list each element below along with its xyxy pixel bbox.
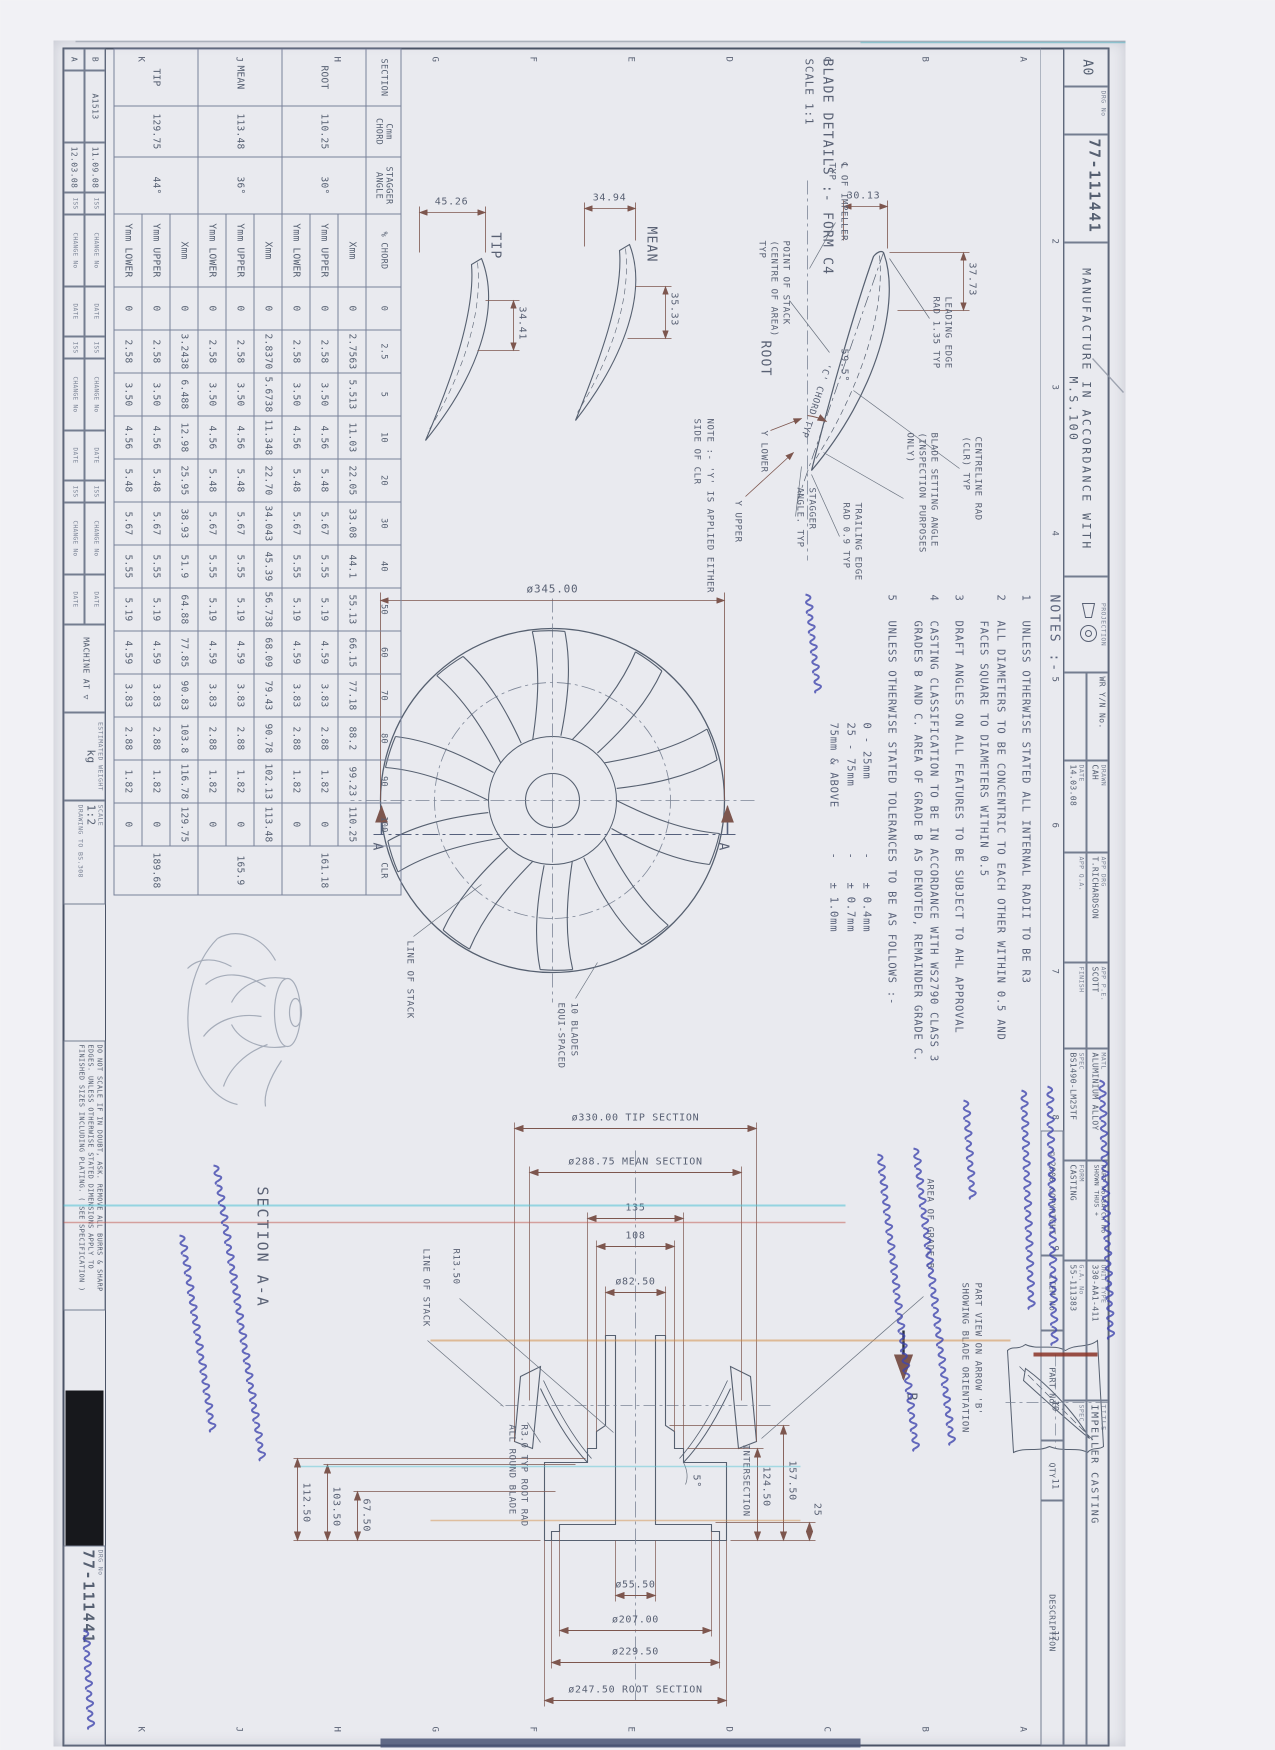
revision-header: CHANGE No — [84, 358, 105, 430]
stack-leader — [413, 884, 481, 936]
est-weight-cell: ESTIMATED WEIGHT kg — [63, 712, 105, 800]
revision-value: 11.09.08 — [84, 142, 105, 192]
tip-width-dim: 34.41 — [516, 306, 527, 340]
table-cell: Ymm UPPER — [310, 214, 338, 287]
table-cell: 1.82 — [198, 760, 226, 803]
table-cell: CLR — [366, 846, 401, 895]
table-cell: 0 — [338, 287, 366, 330]
note-item: 2 ALL DIAMETERS TO BE CONCENTRIC TO EACH… — [975, 594, 1008, 1080]
table-cell: 110.25 — [338, 803, 366, 846]
table-cell: 2.7563 — [338, 330, 366, 373]
table-cell: 0 — [310, 803, 338, 846]
revision-header: DATE — [63, 430, 84, 480]
revision-value: B — [84, 48, 105, 70]
note-item: 5 UNLESS OTHERWISE STATED TOLERANCES TO … — [883, 594, 899, 1080]
table-cell: % CHORD — [366, 214, 401, 287]
section-dim-texts: ø330.00 TIP SECTION ø288.75 MEAN SECTION… — [300, 1112, 934, 1695]
table-cell: 66.15 — [338, 631, 366, 674]
table-cell: 5.48 — [310, 459, 338, 502]
border-letter: J — [233, 56, 243, 61]
revision-value: A — [63, 48, 84, 70]
revision-value: A1513 — [84, 70, 105, 142]
svg-text:(CLR) TYP: (CLR) TYP — [960, 436, 970, 490]
table-cell: 60 — [366, 631, 401, 674]
table-cell: 3.50 — [282, 373, 310, 416]
table-cell: 3.50 — [226, 373, 254, 416]
mean-profile-sketch — [575, 244, 635, 420]
table-cell: Cmm CHORD — [366, 106, 401, 157]
table-cell: 5.67 — [114, 502, 142, 545]
table-cell: 5.6738 — [254, 373, 282, 416]
svg-text:ø247.50 ROOT SECTION: ø247.50 ROOT SECTION — [568, 1684, 702, 1695]
revision-header: DATE — [63, 286, 84, 336]
table-cell: 2.88 — [226, 717, 254, 760]
drawing-sheet-rotated: BLADE DETAILS :- FORM C4 SCALE 1:1 37.73… — [0, 0, 1275, 1750]
table-cell: 5.19 — [114, 588, 142, 631]
projection-symbol — [1077, 597, 1099, 651]
drg-no-bottom: DRG No 77-111441 — [63, 1545, 105, 1745]
blade-table: SECTIONCmm CHORDSTAGGER ANGLE% CHORD02.5… — [113, 48, 401, 895]
notes-heading: NOTES :- — [1043, 594, 1063, 1080]
border-number: 10 — [1049, 1400, 1059, 1411]
revision-header: CHANGE No — [63, 214, 84, 286]
tolerance-row: 0 - 25mm - ± 0.4mm — [858, 722, 874, 1080]
table-cell: 36° — [198, 157, 282, 214]
table-cell: 22.70 — [254, 459, 282, 502]
tolerance-row: 75mm & ABOVE - ± 1.0mm — [825, 722, 841, 1080]
revision-header: ISS — [84, 480, 105, 502]
table-cell: 165.9 — [198, 846, 282, 895]
table-cell: Xmm — [170, 214, 198, 287]
table-cell: 0 — [282, 287, 310, 330]
table-cell: 5.67 — [282, 502, 310, 545]
table-cell: 5.19 — [226, 588, 254, 631]
table-cell: 2.88 — [282, 717, 310, 760]
svg-text:67.50: 67.50 — [360, 1498, 371, 1532]
svg-text:157.50: 157.50 — [786, 1460, 797, 1500]
svg-text:(INSPECTION PURPOSES: (INSPECTION PURPOSES — [916, 432, 926, 552]
revision-header: DATE — [84, 574, 105, 624]
svg-text:RAD 0.9 TYP: RAD 0.9 TYP — [840, 502, 850, 568]
table-cell: TIP — [114, 49, 198, 106]
table-cell: 44.1 — [338, 545, 366, 588]
svg-text:TRAILING EDGE: TRAILING EDGE — [852, 502, 862, 580]
table-cell: 100 — [366, 803, 401, 846]
svg-text:108: 108 — [625, 1230, 645, 1241]
table-cell: 1.82 — [114, 760, 142, 803]
date-cell: DATE14.03.08 — [1063, 760, 1086, 852]
qty-header: QTY — [1040, 1440, 1063, 1500]
notes-block: NOTES :- 1 UNLESS OTHERWISE STATED ALL I… — [825, 594, 1063, 1080]
tolerance-row: 25 - 75mm - ± 0.7mm — [841, 722, 857, 1080]
svg-text:R3.0 TYP ROOT RAD: R3.0 TYP ROOT RAD — [518, 1424, 528, 1526]
svg-text:A: A — [715, 842, 730, 851]
border-number: 3 — [1049, 384, 1059, 389]
form-cell: FORMCASTING — [1063, 1160, 1086, 1260]
table-cell: 4.56 — [226, 416, 254, 459]
table-cell: Xmm — [338, 214, 366, 287]
svg-text:TYP: TYP — [826, 162, 836, 180]
table-cell: 4.59 — [226, 631, 254, 674]
table-cell: Xmm — [254, 214, 282, 287]
border-number: 8 — [1049, 1114, 1059, 1119]
table-cell: 2.58 — [282, 330, 310, 373]
table-cell: 3.83 — [114, 674, 142, 717]
table-cell: 4.59 — [310, 631, 338, 674]
border-letter: F — [527, 56, 537, 61]
table-cell: 1.82 — [226, 760, 254, 803]
svg-text:'C' CHORD TYP: 'C' CHORD TYP — [798, 361, 832, 439]
table-cell: 70 — [366, 674, 401, 717]
item-no-header: ITEM No — [1040, 1255, 1063, 1330]
svg-text:Y UPPER: Y UPPER — [732, 500, 742, 542]
table-cell: 30 — [366, 502, 401, 545]
revision-value — [63, 70, 84, 142]
table-cell: 30° — [282, 157, 366, 214]
svg-text:RAD 1.35 TYP: RAD 1.35 TYP — [930, 296, 940, 368]
table-cell: 11.03 — [338, 416, 366, 459]
table-cell: 5.48 — [114, 459, 142, 502]
table-cell: 4.56 — [198, 416, 226, 459]
drg-no-label: DRG No — [1063, 86, 1108, 134]
table-cell: 22.05 — [338, 459, 366, 502]
border-letter: A — [1017, 1726, 1027, 1731]
manufacture-note: MANUFACTURE IN ACCORDANCE WITH M.S.100 — [1063, 242, 1108, 576]
table-cell: 0 — [254, 287, 282, 330]
note-item: 3 DRAFT ANGLES ON ALL FEATURES TO BE SUB… — [950, 594, 966, 1080]
table-cell: 3.50 — [142, 373, 170, 416]
svg-text:25: 25 — [811, 1503, 822, 1516]
table-cell: 6.488 — [170, 373, 198, 416]
title-cell: TITLEIMPELLER CASTING — [1086, 1400, 1108, 1745]
spec-cell: SPECBS1490-LM25TF — [1063, 1048, 1086, 1160]
table-cell: 3.83 — [310, 674, 338, 717]
table-cell: 33.08 — [338, 502, 366, 545]
border-letter: D — [723, 1726, 733, 1731]
table-cell: 4.56 — [114, 416, 142, 459]
section-cut-line: A A — [369, 806, 735, 851]
svg-text:SIDE OF CLR: SIDE OF CLR — [691, 418, 701, 484]
table-cell: 2.88 — [198, 717, 226, 760]
copyright-cell: © 2008 COPYRIGHT — [1040, 1130, 1063, 1255]
impeller-3d-sketch — [187, 933, 301, 1106]
scale-cell: SCALE 1:2 DRAWING TO BS.308 — [63, 800, 105, 904]
part-no-header: PART No — [1040, 1330, 1063, 1440]
revision-header: ISS — [84, 192, 105, 214]
border-letter: A — [1017, 56, 1027, 61]
table-cell: 0 — [366, 287, 401, 330]
tip-height-dim: 45.26 — [434, 196, 468, 207]
svg-text:5°: 5° — [690, 1474, 701, 1487]
wr-cell: WR Y/N No. — [1086, 672, 1108, 760]
root-width-dim: 37.73 — [966, 262, 977, 296]
svg-text:ø229.50: ø229.50 — [611, 1646, 658, 1657]
part-batch-cell: PART No/BATCH No SHOWN THUS + — [1086, 1160, 1108, 1260]
border-letter: E — [625, 56, 635, 61]
revision-header: ISS — [84, 336, 105, 358]
app-pe-cell: APP P.E.SCOTT — [1086, 962, 1108, 1048]
part-view-label-1: PART VIEW ON ARROW 'B' — [972, 1282, 982, 1414]
table-cell: 5 — [366, 373, 401, 416]
table-cell: 25.95 — [170, 459, 198, 502]
table-cell: 0 — [114, 287, 142, 330]
wr-cell-blank — [1063, 672, 1086, 760]
table-cell: 3.50 — [114, 373, 142, 416]
table-cell: 129.75 — [114, 106, 198, 157]
table-cell: 0 — [198, 287, 226, 330]
svg-text:℄ OF IMPELLER: ℄ OF IMPELLER — [838, 161, 848, 241]
revision-header: CHANGE No — [63, 358, 84, 430]
table-cell: 0 — [198, 803, 226, 846]
finish-cell: FINISH — [1063, 962, 1086, 1048]
table-cell: 80 — [366, 717, 401, 760]
table-cell: 88.2 — [338, 717, 366, 760]
revision-header: ISS — [63, 480, 84, 502]
table-cell: 90 — [366, 760, 401, 803]
description-header: DESCRIPTION — [1040, 1500, 1063, 1745]
blades-note-1: 10 BLADES — [568, 1002, 578, 1056]
svg-text:TYP: TYP — [756, 240, 766, 258]
spec2-cell: SPEC — [1063, 1400, 1086, 1745]
svg-text:STAGGER: STAGGER — [806, 487, 816, 529]
revision-header: CHANGE No — [84, 502, 105, 574]
table-cell: 0 — [142, 287, 170, 330]
table-cell: 102.13 — [254, 760, 282, 803]
svg-text:ø288.75 MEAN SECTION: ø288.75 MEAN SECTION — [568, 1156, 702, 1167]
border-letter: H — [331, 56, 341, 61]
table-cell: Ymm UPPER — [226, 214, 254, 287]
svg-text:LINE OF STACK: LINE OF STACK — [420, 1248, 430, 1326]
projection-cell: PROJECTION — [1063, 576, 1108, 672]
border-letter: K — [135, 56, 145, 61]
drawn-cell: DRAWNCAH — [1086, 760, 1108, 852]
svg-text:135: 135 — [625, 1202, 645, 1213]
table-cell: 4.59 — [282, 631, 310, 674]
border-letter: B — [919, 1726, 929, 1731]
table-cell: 5.513 — [338, 373, 366, 416]
table-cell: 56.738 — [254, 588, 282, 631]
svg-text:ø330.00 TIP SECTION: ø330.00 TIP SECTION — [571, 1112, 699, 1123]
table-cell: 51.9 — [170, 545, 198, 588]
svg-text:AREA OF GRADE B: AREA OF GRADE B — [924, 1178, 934, 1268]
table-cell: 90.78 — [254, 717, 282, 760]
table-cell: 40 — [366, 545, 401, 588]
revision-header: DATE — [63, 574, 84, 624]
border-letter: F — [527, 1726, 537, 1731]
revision-header: ISS — [63, 192, 84, 214]
revision-header: CHANGE No — [63, 502, 84, 574]
table-cell: 0 — [170, 287, 198, 330]
table-cell: 1.82 — [310, 760, 338, 803]
blades-note-2: EQUI-SPACED — [555, 1002, 565, 1068]
border-letter: G — [429, 56, 439, 61]
table-cell: 5.19 — [142, 588, 170, 631]
table-cell: 11.348 — [254, 416, 282, 459]
table-cell: 68.09 — [254, 631, 282, 674]
angle-59-5: 59.5° — [838, 348, 849, 382]
table-cell: 5.55 — [142, 545, 170, 588]
table-cell: 116.78 — [170, 760, 198, 803]
table-cell: 5.67 — [142, 502, 170, 545]
table-cell: 2.58 — [198, 330, 226, 373]
table-cell: 5.67 — [226, 502, 254, 545]
tip-profile-sketch — [425, 258, 488, 440]
table-cell: 44° — [114, 157, 198, 214]
table-cell: 5.48 — [226, 459, 254, 502]
table-cell: Ymm LOWER — [198, 214, 226, 287]
svg-text:B: B — [903, 1392, 918, 1401]
table-cell: 113.48 — [254, 803, 282, 846]
table-cell: 0 — [282, 803, 310, 846]
svg-text:POINT OF STACK: POINT OF STACK — [780, 240, 790, 324]
svg-text:R13.50: R13.50 — [450, 1248, 460, 1284]
border-number: 7 — [1049, 968, 1059, 973]
table-cell: 0 — [142, 803, 170, 846]
app-qa-cell: APP Q.A. — [1063, 852, 1086, 962]
line-of-stack-label: LINE OF STACK — [404, 940, 414, 1018]
revision-header: CHANGE No — [84, 214, 105, 286]
table-cell: 129.75 — [170, 803, 198, 846]
border-number: 12 — [1049, 1630, 1059, 1641]
front-dia-dim: ø345.00 — [526, 582, 578, 595]
table-cell: 3.83 — [226, 674, 254, 717]
table-cell: 5.19 — [198, 588, 226, 631]
table-cell: 3.83 — [142, 674, 170, 717]
border-letter: C — [821, 1726, 831, 1731]
table-cell: 5.55 — [226, 545, 254, 588]
company-logo-redacted — [65, 1390, 103, 1545]
svg-text:NOTE :- 'Y' IS APPLIED EITHER: NOTE :- 'Y' IS APPLIED EITHER — [704, 418, 714, 593]
table-cell: 1.82 — [142, 760, 170, 803]
scanned-drawing-page: BLADE DETAILS :- FORM C4 SCALE 1:1 37.73… — [0, 0, 1275, 1750]
table-cell: 161.18 — [282, 846, 366, 895]
table-cell: 12.98 — [170, 416, 198, 459]
border-letter: H — [331, 1726, 341, 1731]
table-cell: 5.55 — [282, 545, 310, 588]
table-cell: 2.58 — [142, 330, 170, 373]
border-number: 6 — [1049, 822, 1059, 827]
table-cell: 55.13 — [338, 588, 366, 631]
mean-name: MEAN — [643, 226, 658, 262]
border-letter: G — [429, 1726, 439, 1731]
table-cell: 3.50 — [310, 373, 338, 416]
svg-text:112.50: 112.50 — [300, 1482, 311, 1522]
table-cell: 189.68 — [114, 846, 198, 895]
table-cell: 2.58 — [310, 330, 338, 373]
svg-text:INTERSECTION: INTERSECTION — [740, 1444, 750, 1516]
table-cell: 4.59 — [198, 631, 226, 674]
table-cell: 4.56 — [282, 416, 310, 459]
table-cell: 2.58 — [114, 330, 142, 373]
border-letter: J — [233, 1726, 243, 1731]
revision-header: ISS — [63, 336, 84, 358]
app-drg-cell: APP DRGT.RICHARDSON — [1086, 852, 1108, 962]
mean-height-dim: 34.94 — [592, 192, 626, 203]
part-view-label-2: SHOWING BLADE ORIENTATION — [959, 1282, 969, 1432]
border-number: 4 — [1049, 530, 1059, 535]
table-cell: 3.83 — [198, 674, 226, 717]
table-cell: 3.83 — [282, 674, 310, 717]
table-cell: 113.48 — [198, 106, 282, 157]
drg-no-value: 77-111441 — [1063, 134, 1108, 242]
svg-text:ALL ROUND BLADE: ALL ROUND BLADE — [506, 1424, 516, 1514]
table-cell: 0 — [226, 803, 254, 846]
svg-text:124.50: 124.50 — [760, 1466, 771, 1506]
table-cell: 2.5 — [366, 330, 401, 373]
table-cell: 4.56 — [310, 416, 338, 459]
table-cell: 2.88 — [142, 717, 170, 760]
table-cell: 5.55 — [114, 545, 142, 588]
table-cell: 2.8370 — [254, 330, 282, 373]
table-cell: 5.48 — [282, 459, 310, 502]
note-item: 1 UNLESS OTHERWISE STATED ALL INTERNAL R… — [1017, 594, 1033, 1080]
table-cell: 5.19 — [282, 588, 310, 631]
table-cell: 5.67 — [310, 502, 338, 545]
border-number: 5 — [1049, 676, 1059, 681]
table-cell: 20 — [366, 459, 401, 502]
svg-text:ONLY): ONLY) — [904, 432, 914, 462]
table-cell: 34.043 — [254, 502, 282, 545]
table-cell: 5.19 — [310, 588, 338, 631]
table-cell: 79.43 — [254, 674, 282, 717]
svg-text:(CENTRE OF AREA): (CENTRE OF AREA) — [768, 240, 778, 336]
machine-at-cell: MACHINE AT ▽ — [63, 624, 105, 712]
table-cell: 0 — [114, 803, 142, 846]
table-cell: 5.55 — [198, 545, 226, 588]
table-cell: 3.50 — [198, 373, 226, 416]
blade-details-scale: SCALE 1:1 — [802, 58, 815, 125]
mean-width-dim: 35.33 — [668, 292, 679, 326]
section-title: SECTION A-A — [253, 1186, 271, 1307]
table-cell: 5.55 — [310, 545, 338, 588]
border-number: 9 — [1049, 1245, 1059, 1250]
table-cell: 103.8 — [170, 717, 198, 760]
border-letter: B — [919, 56, 929, 61]
svg-text:Y LOWER: Y LOWER — [758, 430, 768, 472]
table-cell: 10 — [366, 416, 401, 459]
unit-type-cell: UNIT TYPE330-AA1-411 — [1086, 1260, 1108, 1400]
table-cell: 4.56 — [142, 416, 170, 459]
table-cell: SECTION — [366, 49, 401, 106]
revision-header: DATE — [84, 430, 105, 480]
table-cell: 2.88 — [114, 717, 142, 760]
revision-header: DATE — [84, 286, 105, 336]
table-cell: ROOT — [282, 49, 366, 106]
svg-text:ø207.00: ø207.00 — [611, 1614, 658, 1625]
mean-dims — [584, 202, 671, 338]
table-cell: 0 — [226, 287, 254, 330]
table-cell: 3.2438 — [170, 330, 198, 373]
table-cell: Ymm LOWER — [114, 214, 142, 287]
table-cell: Ymm LOWER — [282, 214, 310, 287]
table-cell: 5.48 — [142, 459, 170, 502]
tip-dims — [419, 206, 519, 350]
border-number: 11 — [1049, 1478, 1059, 1489]
table-cell: 4.59 — [142, 631, 170, 674]
table-cell: 90.83 — [170, 674, 198, 717]
border-letter: K — [135, 1726, 145, 1731]
note-item: 4 CASTING CLASSIFICATION TO BE IN ACCORD… — [908, 594, 941, 1080]
svg-text:CENTRELINE RAD: CENTRELINE RAD — [972, 436, 982, 520]
table-cell: 0 — [310, 287, 338, 330]
do-not-scale-cell: DO NOT SCALE IF IN DOUBT, ASK. REMOVE AL… — [63, 1040, 105, 1310]
blade-ordinate-table: SECTIONCmm CHORDSTAGGER ANGLE% CHORD02.5… — [113, 48, 401, 895]
table-cell: 45.39 — [254, 545, 282, 588]
table-cell: Ymm UPPER — [142, 214, 170, 287]
table-cell: 4.59 — [114, 631, 142, 674]
border-letter: D — [723, 56, 733, 61]
front-view-dim — [380, 592, 724, 800]
